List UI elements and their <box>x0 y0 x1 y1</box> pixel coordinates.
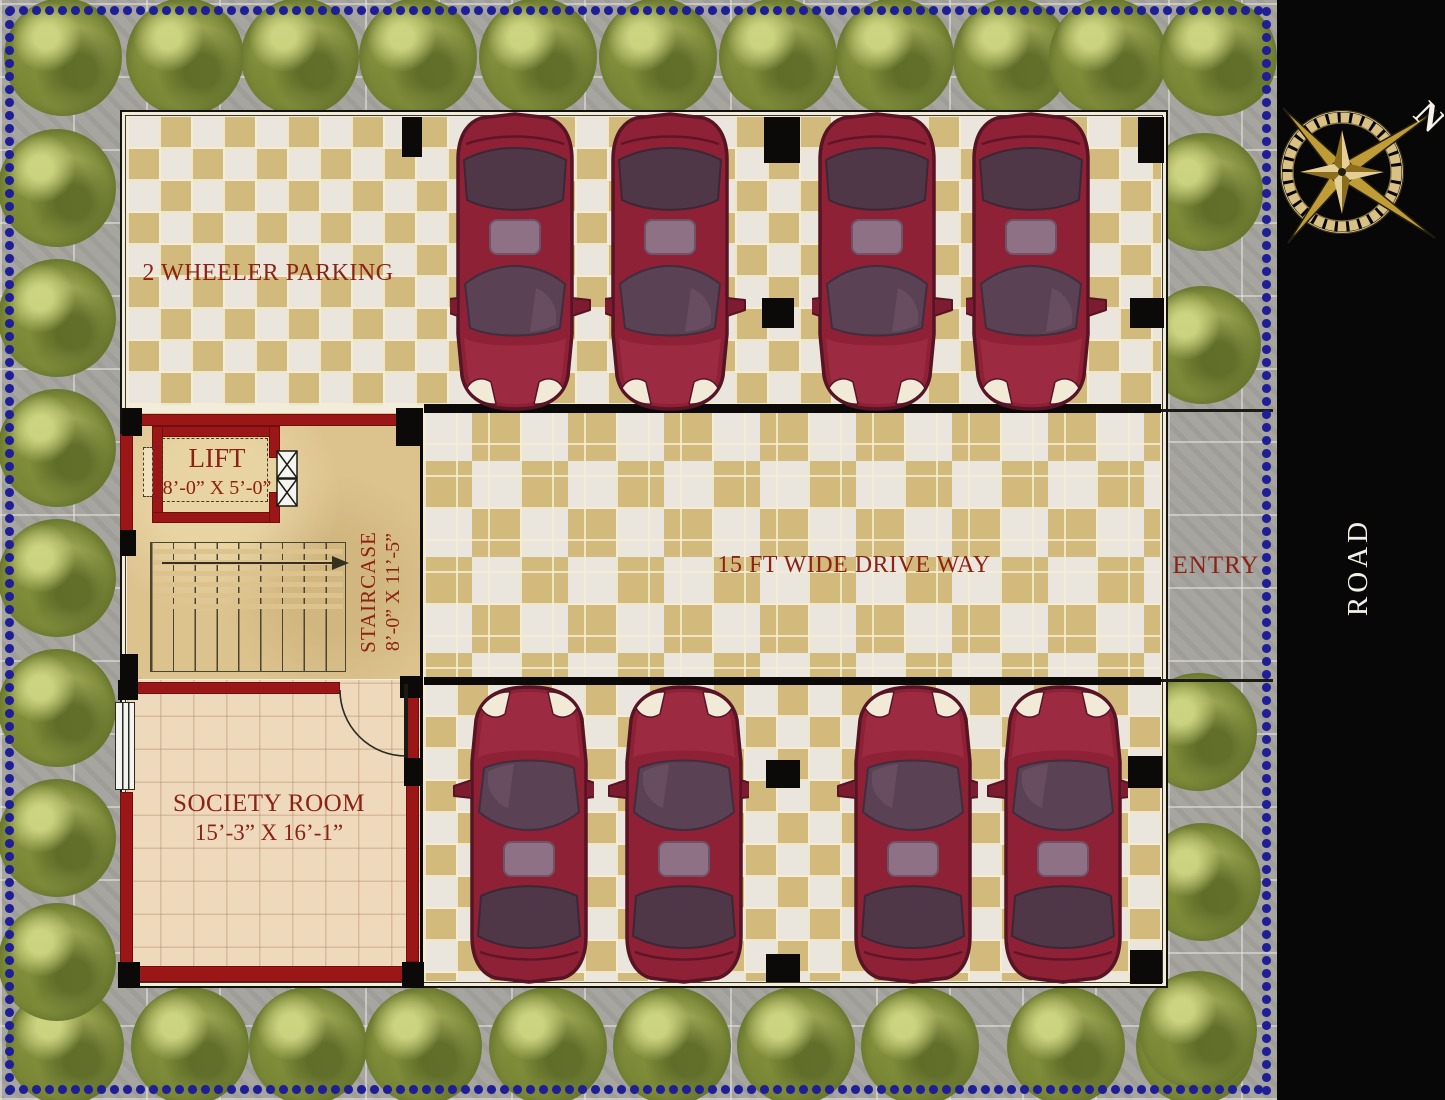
driveway-floor <box>424 413 1161 679</box>
parked-car <box>824 684 978 984</box>
staircase-direction-arrow <box>160 552 352 574</box>
wall-red <box>138 966 406 982</box>
parked-car <box>812 112 966 412</box>
wall-column <box>1138 117 1164 163</box>
wall-column <box>122 408 142 436</box>
staircase-label: STAIRCASE <box>355 492 381 692</box>
entry-label: ENTRY <box>1161 550 1271 581</box>
wall-column <box>1130 298 1164 328</box>
floor-plan: ROAD <box>0 0 1445 1100</box>
lift-label: LIFT <box>156 442 278 476</box>
parked-car <box>595 684 749 984</box>
compass-rose: N <box>1272 78 1444 266</box>
dotted-boundary-bottom <box>4 1084 1268 1095</box>
wall-red <box>120 792 133 966</box>
entry-corridor-top-line <box>1161 409 1273 412</box>
wall-column <box>1128 756 1162 788</box>
entry-corridor-bottom-line <box>1161 679 1273 682</box>
wall-red <box>134 682 340 694</box>
wall-column <box>1130 950 1162 984</box>
parked-car <box>440 684 594 984</box>
wall-column <box>120 530 136 556</box>
lift-label-group: LIFT 8’-0” X 5’-0” <box>156 442 278 501</box>
road-label: ROAD <box>1339 487 1377 647</box>
wall-column <box>762 298 794 328</box>
wall-column <box>118 680 138 700</box>
wall-column <box>766 760 800 788</box>
wall-column <box>118 962 140 988</box>
wall-red <box>152 512 280 523</box>
wall-red <box>140 414 398 426</box>
parked-car <box>974 684 1128 984</box>
lift-door-icon <box>276 450 298 508</box>
dotted-boundary-left <box>4 5 15 1095</box>
wall-column <box>402 962 424 988</box>
wall-column <box>402 117 422 157</box>
two-wheeler-parking-label: 2 WHEELER PARKING <box>138 258 398 288</box>
wall-column <box>766 954 800 982</box>
compass-north-label: N <box>1406 93 1444 140</box>
lift-machine-box <box>143 447 153 497</box>
society-room-dimensions: 15’-3” X 16’-1” <box>134 819 404 848</box>
wall-column <box>764 117 800 163</box>
parked-car <box>450 112 604 412</box>
driveway-label: 15 FT WIDE DRIVE WAY <box>704 550 1004 580</box>
wall-column <box>120 654 138 682</box>
wall-red <box>120 434 133 532</box>
parked-car <box>966 112 1120 412</box>
wall-red <box>152 426 280 437</box>
dotted-boundary-top <box>4 5 1268 16</box>
lift-dimensions: 8’-0” X 5’-0” <box>156 476 278 501</box>
staircase-label-group: STAIRCASE 8’-0” X 11’-5” <box>355 492 407 692</box>
society-room-label-group: SOCIETY ROOM 15’-3” X 16’-1” <box>134 788 404 848</box>
society-room-label: SOCIETY ROOM <box>134 788 404 819</box>
staircase-dimensions: 8’-0” X 11’-5” <box>381 492 406 692</box>
society-window <box>115 702 135 790</box>
parked-car <box>605 112 759 412</box>
wall-column <box>396 408 422 446</box>
